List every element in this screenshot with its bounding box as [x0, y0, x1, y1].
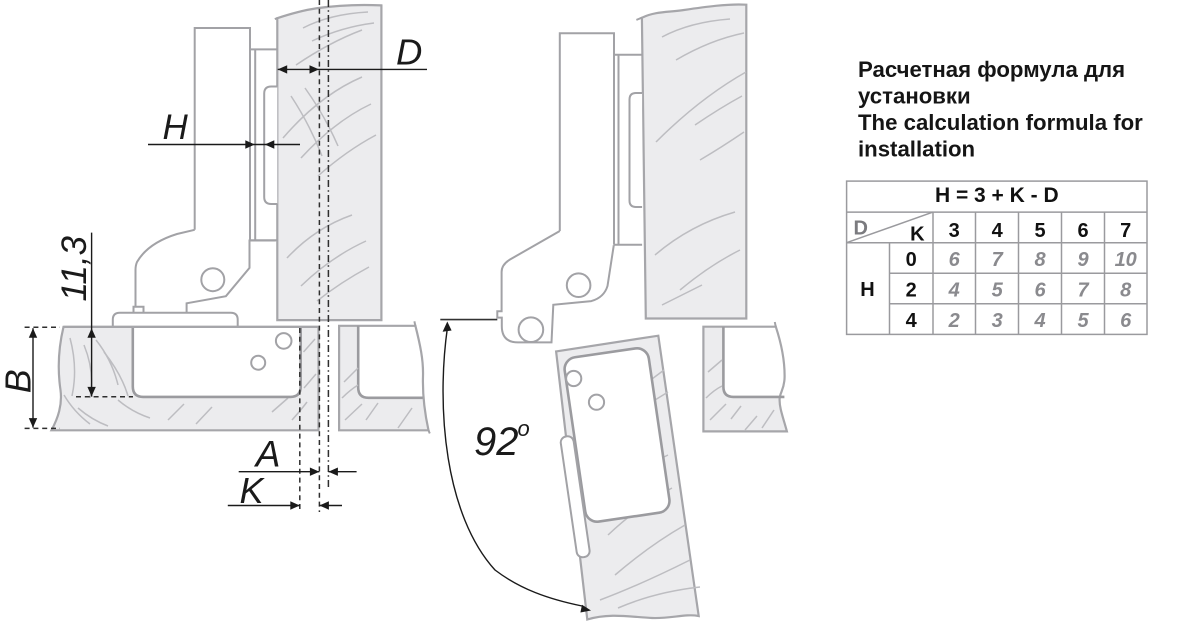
svg-text:H: H — [860, 279, 874, 301]
svg-text:6: 6 — [1034, 279, 1046, 301]
svg-text:8: 8 — [1034, 249, 1046, 271]
svg-text:5: 5 — [1034, 220, 1045, 242]
svg-text:6: 6 — [1077, 220, 1088, 242]
svg-text:installation: installation — [858, 137, 975, 162]
svg-text:H: H — [163, 108, 189, 147]
svg-text:B: B — [0, 369, 39, 393]
svg-text:установки: установки — [858, 84, 971, 109]
svg-text:K: K — [240, 470, 266, 511]
svg-text:K: K — [910, 224, 925, 246]
svg-text:4: 4 — [948, 279, 960, 301]
svg-text:D: D — [854, 218, 868, 240]
svg-text:0: 0 — [906, 249, 917, 271]
svg-text:A: A — [254, 434, 281, 475]
svg-text:H = 3 + K - D: H = 3 + K - D — [935, 184, 1059, 207]
svg-text:6: 6 — [949, 249, 961, 271]
svg-text:3: 3 — [949, 220, 960, 242]
svg-text:Расчетная формула для: Расчетная формула для — [858, 57, 1125, 82]
svg-text:7: 7 — [1077, 279, 1089, 301]
svg-text:4: 4 — [1033, 310, 1045, 332]
svg-text:10: 10 — [1115, 249, 1137, 271]
svg-text:o: o — [518, 416, 530, 441]
svg-text:2: 2 — [906, 279, 917, 301]
svg-text:8: 8 — [1120, 279, 1132, 301]
svg-text:6: 6 — [1120, 310, 1132, 332]
svg-text:5: 5 — [992, 279, 1004, 301]
svg-text:The calculation formula for: The calculation formula for — [858, 110, 1143, 135]
svg-text:7: 7 — [992, 249, 1004, 271]
svg-text:4: 4 — [992, 220, 1004, 242]
svg-text:D: D — [396, 32, 422, 73]
svg-text:9: 9 — [1077, 249, 1089, 271]
svg-text:7: 7 — [1120, 220, 1131, 242]
svg-text:2: 2 — [948, 310, 960, 332]
svg-text:11,3: 11,3 — [55, 235, 94, 301]
svg-text:4: 4 — [906, 310, 918, 332]
svg-text:5: 5 — [1077, 310, 1089, 332]
svg-text:3: 3 — [992, 310, 1003, 332]
svg-text:92: 92 — [474, 420, 519, 464]
